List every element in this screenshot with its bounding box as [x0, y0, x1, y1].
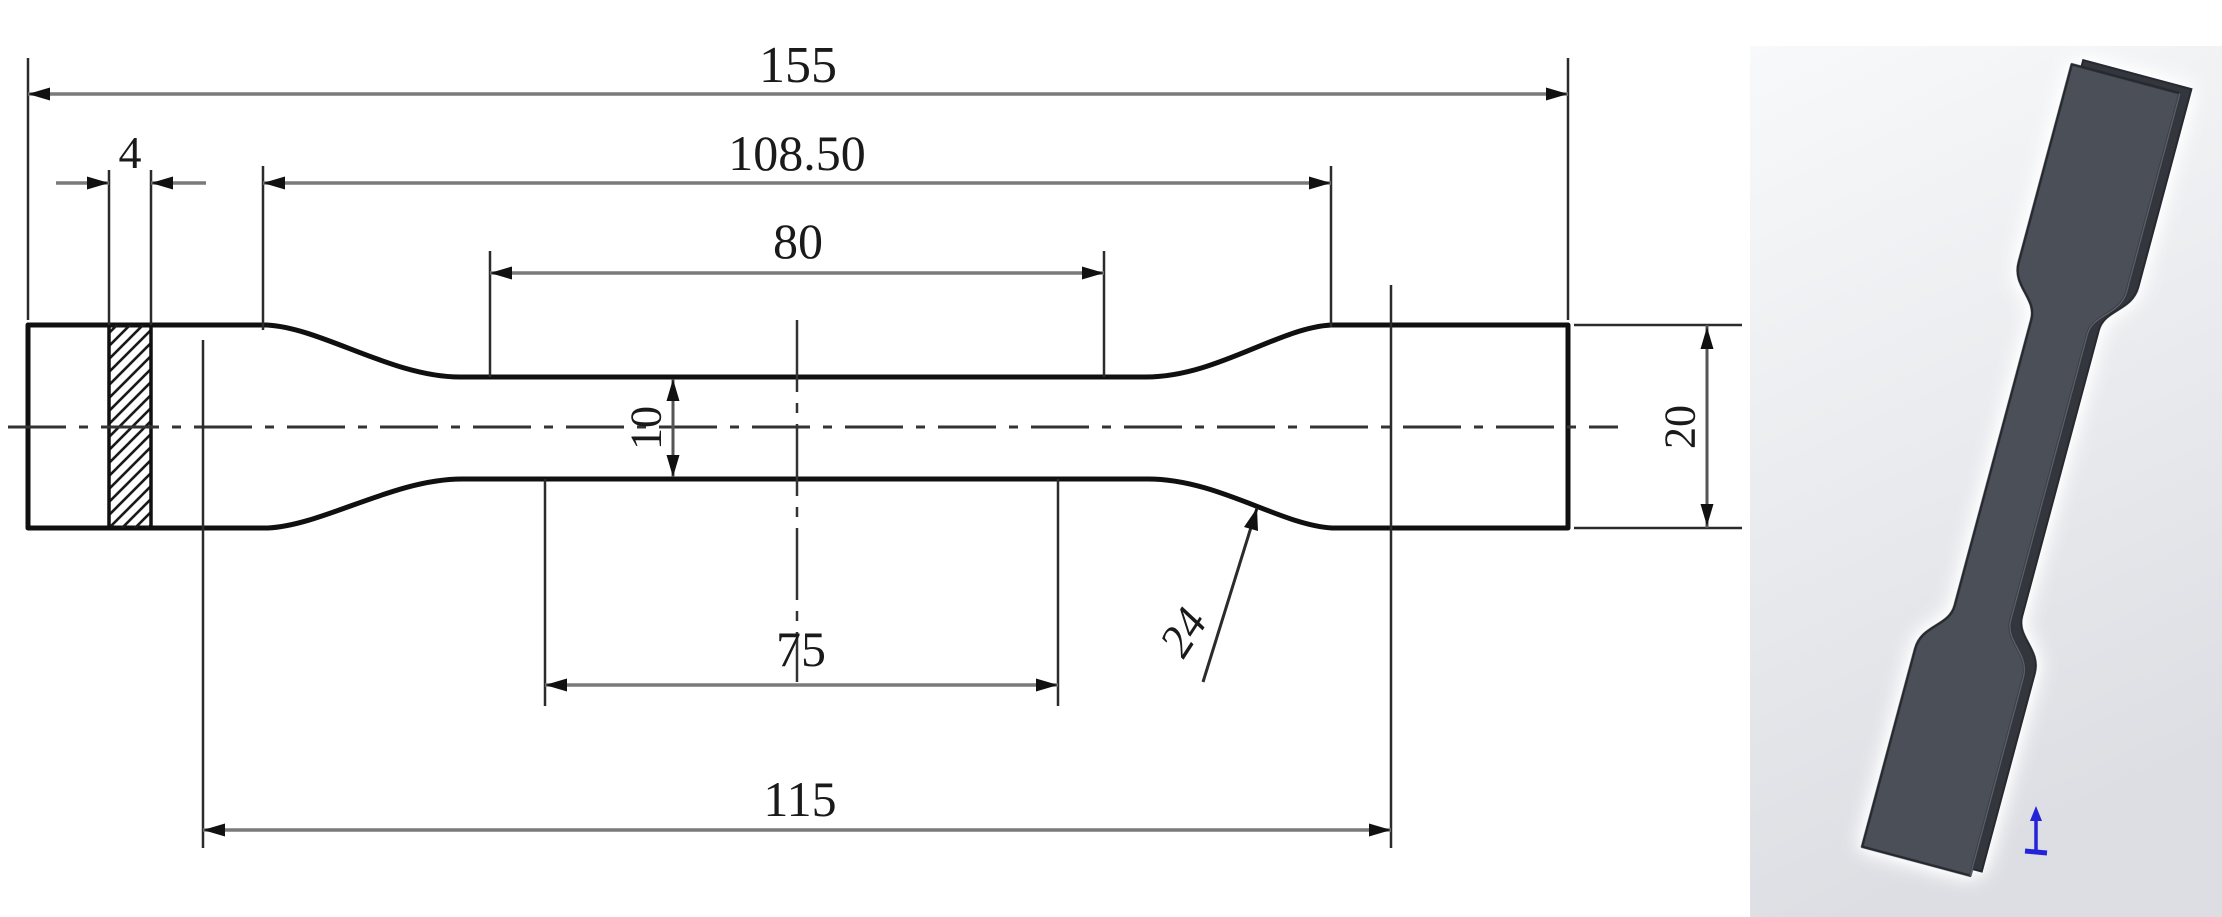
dimension-section-thickness: 4 [56, 127, 206, 325]
arrowhead-left [203, 824, 225, 837]
arrowhead-down [1701, 504, 1714, 526]
arrowhead-left [263, 177, 285, 190]
dim-label-fillet-radius: 24 [1149, 599, 1217, 665]
dim-label-gauge-width: 10 [622, 406, 671, 450]
arrowhead-up [1701, 327, 1714, 349]
dim-label-parallel-length: 115 [763, 771, 836, 827]
dim-label-grip-width: 20 [1656, 405, 1705, 449]
dim-label-shoulder-span: 108.50 [728, 125, 866, 181]
tensile-specimen-figure: 155 108.50 4 80 [0, 0, 2222, 917]
leader-line [1203, 508, 1257, 682]
arrowhead-right [151, 177, 173, 190]
arrowhead-right [1082, 267, 1104, 280]
arrowhead-left [28, 88, 50, 101]
engineering-drawing-2d: 155 108.50 4 80 [8, 37, 1742, 848]
dim-label-gauge-length: 80 [773, 213, 823, 269]
arrowhead-left [490, 267, 512, 280]
dim-label-reduced-section: 75 [776, 621, 826, 677]
arrowhead-right [1369, 824, 1391, 837]
arrowhead-left [545, 679, 567, 692]
arrowhead-right [1546, 88, 1568, 101]
dim-label-total-length: 155 [759, 37, 837, 94]
arrowhead-right [1036, 679, 1058, 692]
figure-svg: 155 108.50 4 80 [0, 0, 2222, 917]
render-3d-panel [1750, 46, 2222, 917]
arrowhead-right [1309, 177, 1331, 190]
arrowhead-left [87, 177, 109, 190]
dim-label-section-thickness: 4 [119, 127, 142, 178]
dimension-reduced-section: 75 [545, 479, 1058, 706]
dimension-fillet-radius: 24 [1149, 508, 1258, 682]
origin-base-tick [2025, 851, 2047, 853]
arrowhead [1244, 508, 1258, 531]
